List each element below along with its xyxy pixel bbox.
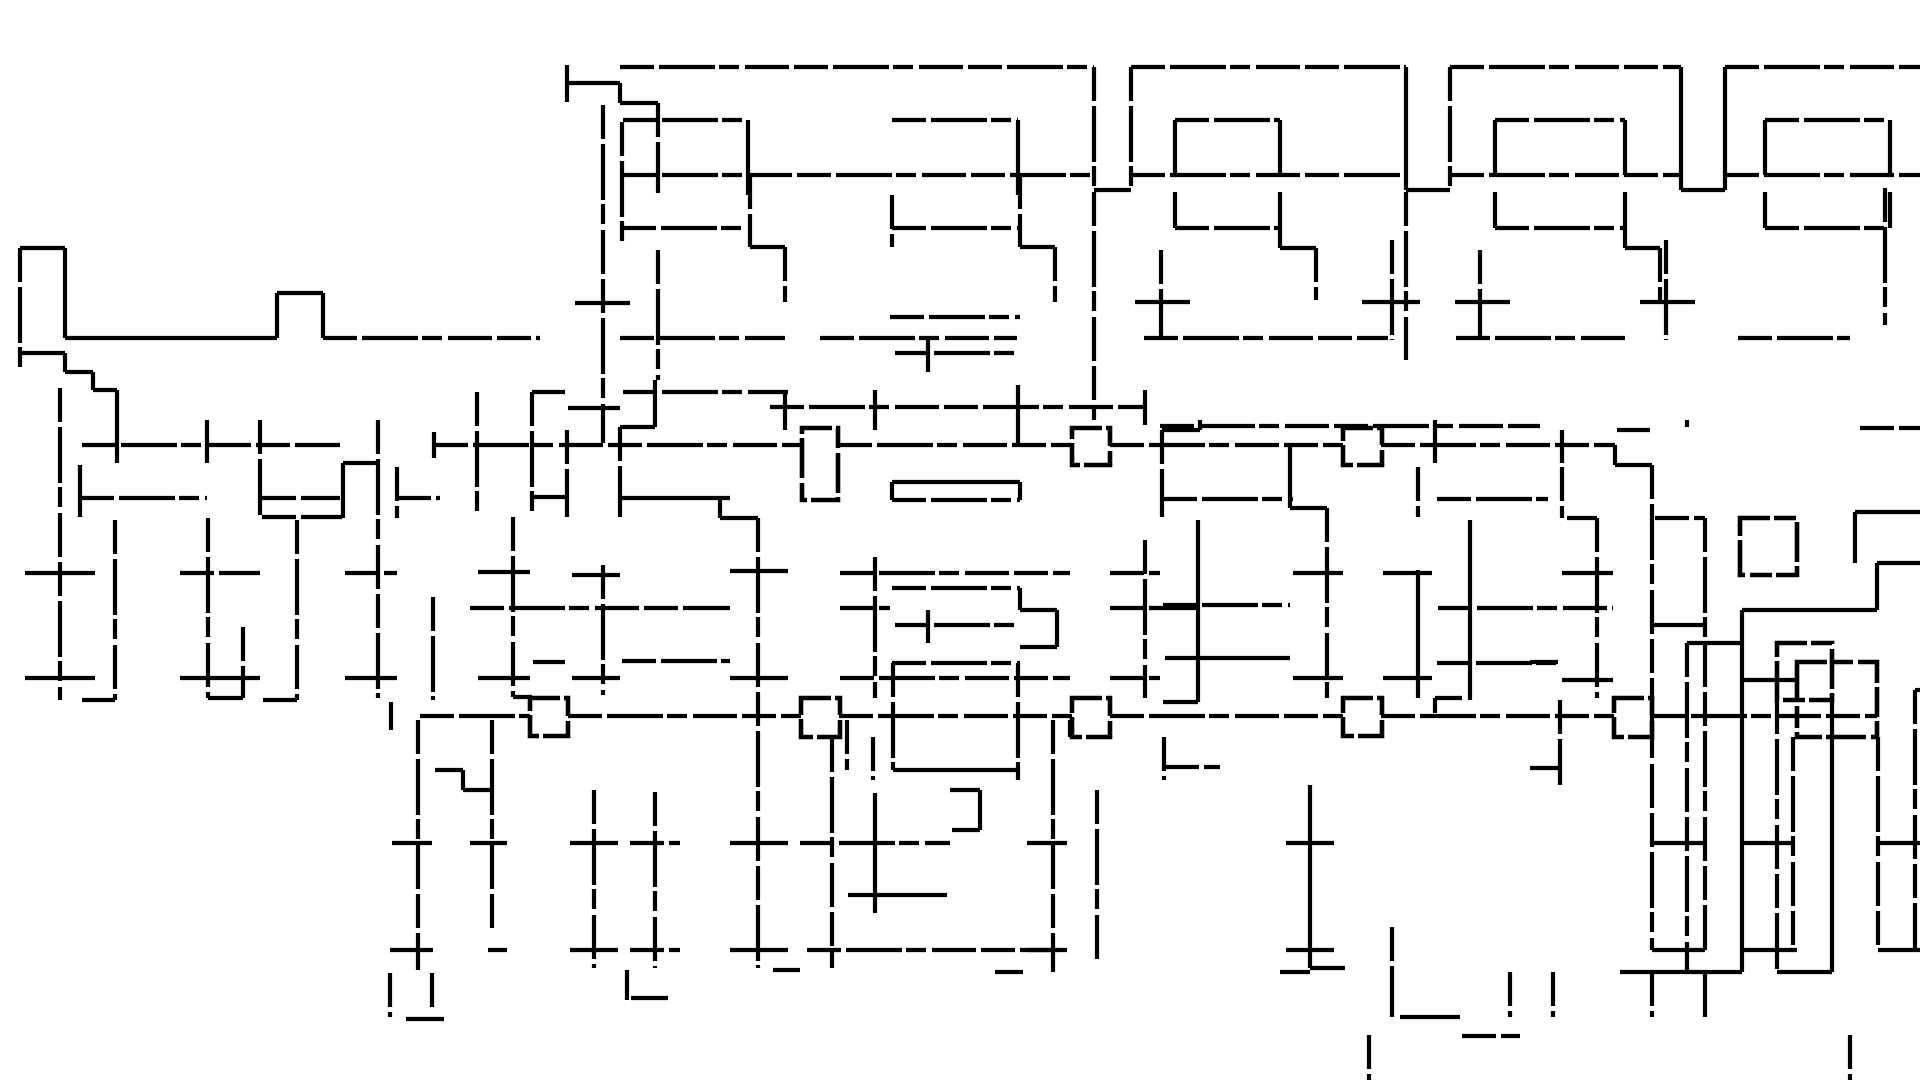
wall-segments — [20, 65, 1920, 1080]
maze-svg — [0, 0, 1920, 1080]
door-squares — [530, 428, 1877, 737]
door-square — [1343, 698, 1382, 736]
door-square — [1343, 428, 1382, 465]
door-square — [1614, 698, 1652, 737]
maze-drawing — [0, 0, 1920, 1080]
door-square — [1777, 643, 1832, 700]
door-square — [1740, 518, 1797, 575]
door-square — [801, 698, 840, 737]
door-square — [530, 698, 568, 736]
door-square — [1072, 428, 1110, 465]
door-square — [802, 428, 838, 500]
door-square — [1072, 698, 1110, 737]
